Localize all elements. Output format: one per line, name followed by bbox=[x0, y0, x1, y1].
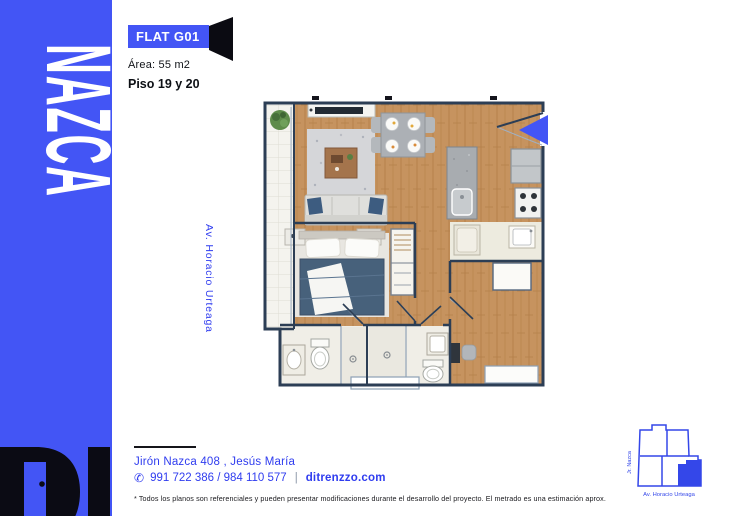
minimap-highlighted-lot bbox=[678, 460, 701, 486]
logo-door-icon bbox=[24, 462, 46, 516]
disclaimer-text: * Todos los planos son referenciales y p… bbox=[134, 494, 606, 503]
sofa bbox=[305, 195, 387, 225]
stove-icon bbox=[515, 188, 541, 218]
window-ledge-bottom bbox=[351, 377, 419, 389]
location-minimap: Jr. Nazca Av. Horacio Urteaga bbox=[614, 422, 714, 506]
coffee-table bbox=[325, 148, 357, 178]
washer-icon bbox=[454, 225, 480, 255]
minimap-street-bottom: Av. Horacio Urteaga bbox=[643, 492, 695, 498]
plant-icon bbox=[270, 110, 290, 130]
brand-logo bbox=[0, 447, 112, 516]
phone-icon: ✆ bbox=[134, 472, 144, 484]
minimap-street-left: Jr. Nazca bbox=[627, 450, 633, 474]
contact-address: Jirón Nazca 408 , Jesús María bbox=[134, 456, 295, 468]
dining-set bbox=[371, 113, 435, 157]
tv-console bbox=[308, 104, 375, 117]
fridge-icon bbox=[511, 149, 541, 183]
kitchen-island bbox=[447, 147, 477, 219]
contact-phone-row: ✆ 991 722 386 / 984 110 577 | ditrenzzo.… bbox=[134, 472, 386, 484]
counter-sink bbox=[509, 226, 535, 248]
contact-phones[interactable]: 991 722 386 / 984 110 577 bbox=[150, 472, 287, 484]
floor-plan bbox=[253, 93, 549, 395]
badge-flag-icon bbox=[209, 17, 235, 61]
contact-separator: | bbox=[293, 472, 300, 484]
hall-closet bbox=[493, 263, 531, 290]
website-link[interactable]: ditrenzzo.com bbox=[306, 472, 386, 484]
logo-doorknob bbox=[39, 481, 45, 487]
street-label-vertical: Av. Horacio Urteaga bbox=[203, 224, 215, 333]
unit-badge-row: FLAT G01 bbox=[128, 25, 235, 61]
unit-floor: Piso 19 y 20 bbox=[128, 77, 200, 91]
footer-divider bbox=[134, 446, 196, 448]
logo-letters bbox=[0, 447, 110, 516]
building-name-vertical: NAZCA bbox=[32, 44, 124, 198]
brand-sidebar: NAZCA bbox=[0, 0, 112, 516]
unit-area: Área: 55 m2 bbox=[128, 59, 190, 71]
window-ledge-right bbox=[485, 366, 538, 383]
brochure-page: NAZCA FLAT G01 Área: 55 m2 Piso 19 y 20 … bbox=[0, 0, 730, 516]
wardrobe bbox=[391, 229, 414, 295]
unit-badge: FLAT G01 bbox=[128, 25, 209, 48]
